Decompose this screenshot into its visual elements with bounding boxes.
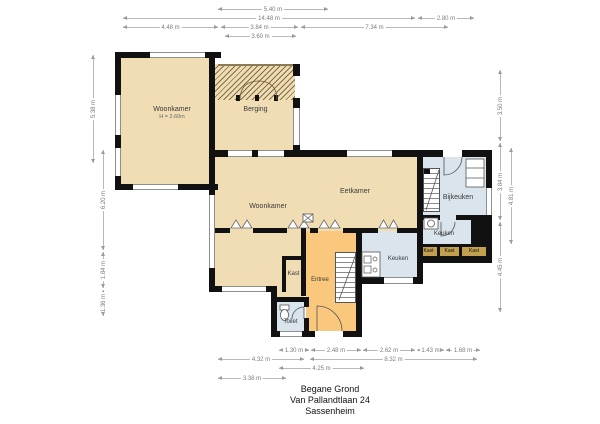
double-door-chevrons [319,220,340,228]
dimension: 4.81 m [511,148,512,244]
dimension: 14.48 m [123,18,415,19]
front-door-arc [317,306,342,331]
room-name: Keuken [434,231,454,237]
dimension-label: 3.84 m [498,170,504,192]
dimension-label: 4.25 m [310,366,332,372]
dimension: 2.62 m [363,350,415,351]
dimension: 4.45 m [500,222,501,312]
dimension-label: 4.81 m [509,185,515,207]
room-label-woonkamer-2: Woonkamer [238,203,298,211]
room-name: Kast [423,248,433,254]
dimension: 1.43 m [417,350,444,351]
double-door-chevrons [231,220,252,228]
floor-plan-canvas: Woonkamer H = 2.60m Berging Woonkamer Ee… [0,0,600,424]
room-name: Kast [469,248,479,254]
room-name: Kast [444,248,454,254]
room-name: Keuken [388,256,408,262]
dimension-label: 7.34 m [363,25,385,31]
room-name: Entree [311,277,329,283]
dimension-label: 4.48 m [159,25,181,31]
dimension-label: 1.43 m [419,348,441,354]
dimension: 2.48 m [311,350,361,351]
stairs-diagonal [426,170,439,210]
dimension: 4.25 m [279,368,364,369]
dimension-label: 5.40 m [262,7,284,13]
room-label-entree: Entree [303,277,337,284]
toilet-door-arc [292,307,304,319]
dimension-label: 1.30 m [283,348,305,354]
dimension: 1.36 m [103,290,104,316]
address: Van Pallandtlaan 24 [200,395,460,406]
room-label-bijkeuken: Bijkeuken [432,194,484,202]
dimension-label: 2.80 m [435,16,457,22]
room-name: Eetkamer [340,188,370,195]
closet-label-3: Kast [462,247,486,256]
dimension: 5.40 m [218,9,328,10]
bijkeuken-door-arc [444,157,462,175]
dimension-label: 3.60 m [249,34,271,40]
dimension: 3.84 m [500,143,501,220]
room-label-kast-hal: Kast [283,271,304,278]
room-name: Kast [287,271,299,277]
dimension-label: 5.38 m [91,98,97,120]
dimension-label: 2.62 m [378,348,400,354]
city: Sassenheim [200,406,460,417]
canopy-door-arc [258,81,277,100]
closet-label-1: Kast [420,247,437,256]
room-label-berging: Berging [228,106,283,114]
dimension: 6.20 m [103,150,104,250]
floor-name: Begane Grond [200,384,460,395]
room-name: Woonkamer [153,106,191,113]
room-name: Bijkeuken [443,194,473,201]
dimension: 2.80 m [418,18,474,19]
dimension: 5.38 m [93,55,94,163]
dimension: 4.48 m [123,27,218,28]
dimension: 3.50 m [500,70,501,141]
room-name: Toilet [283,319,297,325]
dimension: 1.30 m [279,350,309,351]
room-label-eetkamer: Eetkamer [330,188,380,196]
stairs-start-marker [424,169,430,174]
stairs-diagonal [339,254,356,300]
canopy-door-arc [240,81,259,100]
room-name: Berging [243,106,267,113]
ceiling-height-note: H = 2.60m [130,114,214,121]
dimension: 3.84 m [221,27,298,28]
double-door-chevrons [379,220,398,228]
dimension-label: 14.48 m [256,16,282,22]
dimension-label: 4.45 m [498,256,504,278]
room-label-keuken-achter: Keuken [422,231,466,238]
cabinet-icon [466,159,484,187]
dimension: 3.60 m [225,36,296,37]
dimension-label: 8.32 m [382,357,404,363]
dimension-label: 3.84 m [248,25,270,31]
dimension-label: 2.48 m [325,348,347,354]
dimension: 7.34 m [301,27,448,28]
dimension: 1.68 m [446,350,480,351]
room-label-toilet: Toilet [277,319,304,326]
dimension-label: 4.32 m [250,357,272,363]
room-label-woonkamer-1: Woonkamer H = 2.60m [130,106,214,121]
dimension-label: 1.68 m [452,348,474,354]
room-name: Woonkamer [249,203,287,210]
dimension-label: 6.20 m [101,189,107,211]
closet-label-2: Kast [440,247,459,256]
dimension: 4.32 m [218,359,304,360]
dimension: 3.38 m [218,378,286,379]
dimension: 1.84 m [103,252,104,288]
dimension: 8.32 m [310,359,477,360]
title-block: Begane Grond Van Pallandtlaan 24 Sassenh… [200,384,460,417]
dimension-label: 3.38 m [241,376,263,382]
dimension-label: 1.84 m [101,259,107,281]
dimension-label: 1.36 m [101,292,107,314]
dimension-label: 3.50 m [498,94,504,116]
room-label-keuken: Keuken [378,256,418,263]
